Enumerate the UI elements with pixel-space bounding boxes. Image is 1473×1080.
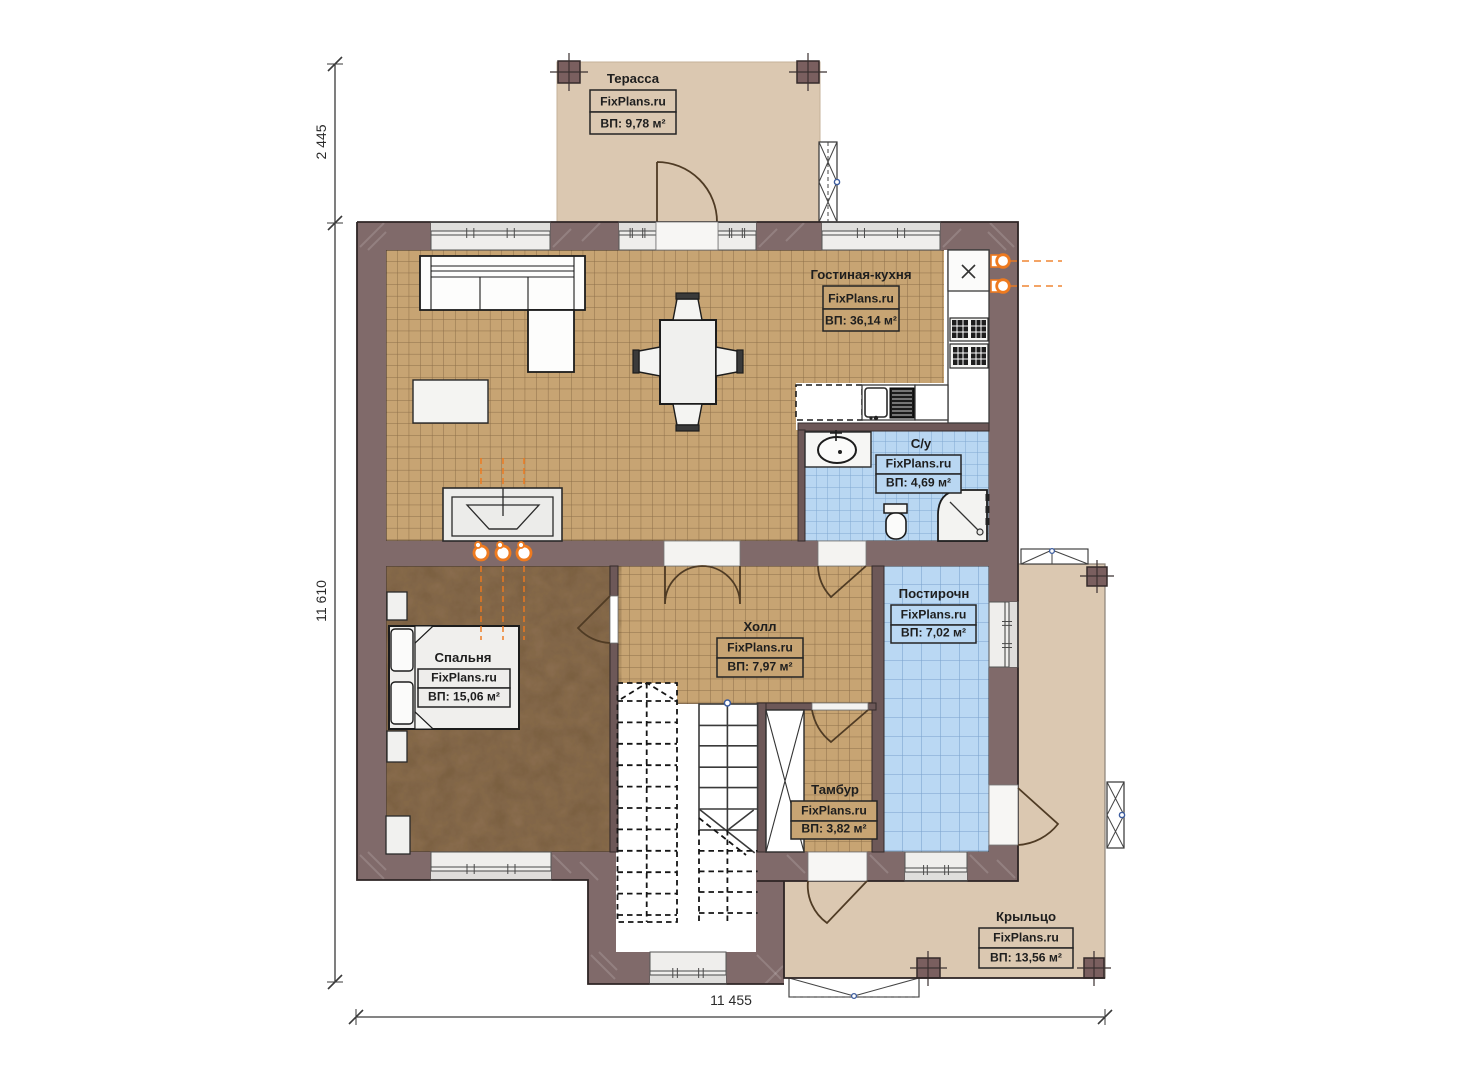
svg-text:ВП: 15,06 м²: ВП: 15,06 м²	[428, 690, 500, 704]
svg-text:Гостиная-кухня: Гостиная-кухня	[810, 267, 911, 282]
svg-text:FixPlans.ru: FixPlans.ru	[801, 804, 867, 818]
svg-text:Крыльцо: Крыльцо	[996, 909, 1056, 924]
svg-text:FixPlans.ru: FixPlans.ru	[901, 608, 967, 622]
svg-text:ВП: 13,56 м²: ВП: 13,56 м²	[990, 951, 1062, 965]
svg-text:11 455: 11 455	[710, 992, 752, 1008]
svg-text:FixPlans.ru: FixPlans.ru	[993, 931, 1059, 945]
svg-text:ВП: 36,14 м²: ВП: 36,14 м²	[825, 314, 897, 328]
svg-text:FixPlans.ru: FixPlans.ru	[600, 95, 666, 109]
svg-text:ВП: 3,82 м²: ВП: 3,82 м²	[801, 822, 866, 836]
svg-text:Спальня: Спальня	[435, 650, 492, 665]
svg-text:FixPlans.ru: FixPlans.ru	[886, 457, 952, 471]
svg-text:ВП: 7,02 м²: ВП: 7,02 м²	[901, 626, 966, 640]
svg-text:2 445: 2 445	[313, 124, 329, 159]
svg-text:Холл: Холл	[743, 619, 776, 634]
svg-text:Тамбур: Тамбур	[811, 782, 859, 797]
svg-text:ВП: 4,69 м²: ВП: 4,69 м²	[886, 476, 951, 490]
svg-text:Постирочн: Постирочн	[899, 586, 970, 601]
svg-text:FixPlans.ru: FixPlans.ru	[828, 292, 894, 306]
svg-text:11 610: 11 610	[313, 580, 329, 622]
svg-text:Терасса: Терасса	[607, 71, 660, 86]
svg-text:FixPlans.ru: FixPlans.ru	[431, 671, 497, 685]
svg-text:С/у: С/у	[911, 436, 932, 451]
svg-text:FixPlans.ru: FixPlans.ru	[727, 641, 793, 655]
svg-text:ВП: 7,97 м²: ВП: 7,97 м²	[727, 660, 792, 674]
svg-text:ВП: 9,78 м²: ВП: 9,78 м²	[600, 117, 665, 131]
